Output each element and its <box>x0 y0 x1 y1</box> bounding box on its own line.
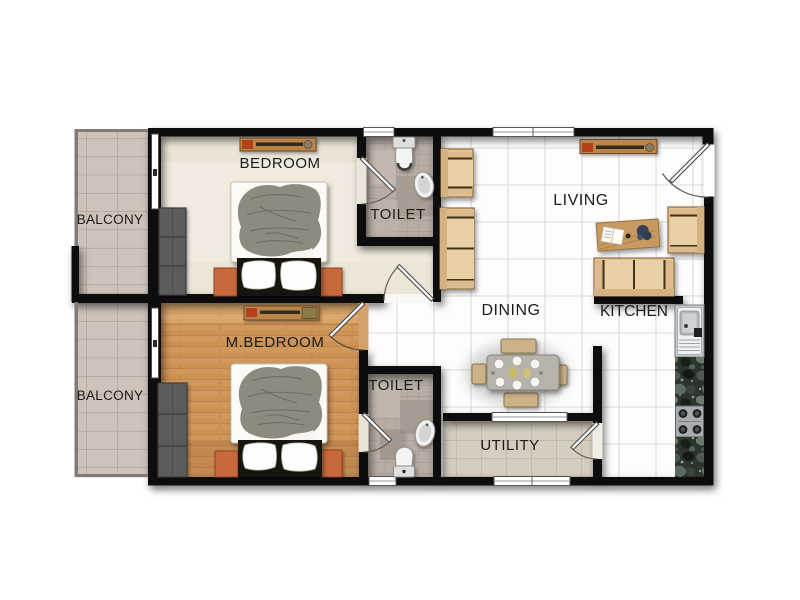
svg-text:LIVING: LIVING <box>553 192 608 209</box>
svg-text:TOILET: TOILET <box>368 377 423 394</box>
svg-text:TOILET: TOILET <box>370 206 425 223</box>
svg-text:BALCONY: BALCONY <box>77 388 144 403</box>
svg-text:KITCHEN: KITCHEN <box>600 303 668 320</box>
svg-text:DINING: DINING <box>482 302 541 319</box>
svg-text:M.BEDROOM: M.BEDROOM <box>226 334 325 351</box>
svg-text:UTILITY: UTILITY <box>480 437 539 454</box>
svg-text:BALCONY: BALCONY <box>77 212 144 227</box>
svg-text:BEDROOM: BEDROOM <box>239 155 320 172</box>
